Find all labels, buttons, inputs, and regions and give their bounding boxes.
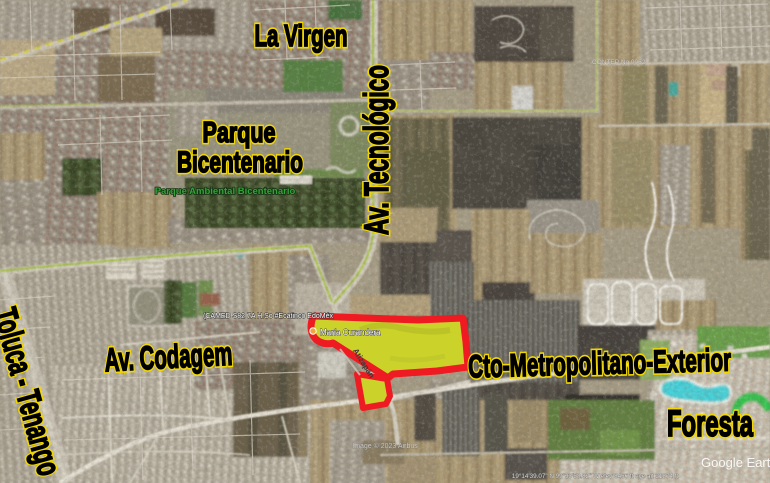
svg-text:Parque Ambiental Bicentenario: Parque Ambiental Bicentenario [155,186,296,197]
svg-text:CONTEP No.0062: CONTEP No.0062 [592,59,646,66]
svg-text:Google Earth: Google Earth [701,455,770,470]
svg-text:Parque: Parque [203,117,276,149]
svg-text:María Curandera: María Curandera [320,328,381,337]
svg-text:La Virgen: La Virgen [255,18,348,53]
svg-text:Image © 2023 Airbus: Image © 2023 Airbus [352,442,418,450]
svg-text:Cto-Metropolitano-Exterior: Cto-Metropolitano-Exterior [468,342,732,385]
svg-text:(CAMED S82 7A H.So #Ecatinco E: (CAMED S82 7A H.So #Ecatinco EdoMéx [203,313,333,320]
svg-text:Av. Codagem: Av. Codagem [104,335,234,379]
svg-text:Av. Tecnológico: Av. Tecnológico [358,65,396,235]
svg-text:Bicentenario: Bicentenario [177,146,303,179]
svg-text:19°14'39.07" N 99°33'58.82": 19°14'39.07" N 99°33'58.82" W elev 8466 … [512,472,679,480]
svg-text:Foresta: Foresta [667,403,753,444]
